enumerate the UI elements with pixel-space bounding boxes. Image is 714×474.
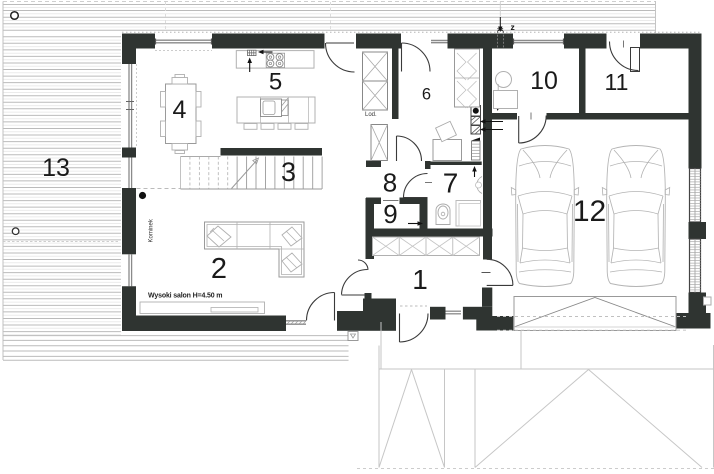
svg-text:Lod.: Lod.: [365, 112, 377, 118]
svg-text:7: 7: [443, 168, 459, 199]
svg-text:1: 1: [412, 264, 428, 295]
svg-text:Wysoki salon H=4.50 m: Wysoki salon H=4.50 m: [148, 293, 222, 300]
svg-text:Kominek: Kominek: [149, 218, 155, 242]
svg-text:2: 2: [211, 253, 227, 285]
svg-text:10: 10: [530, 67, 558, 95]
svg-text:11: 11: [605, 69, 629, 95]
svg-text:6: 6: [422, 86, 431, 104]
svg-text:4: 4: [173, 96, 187, 124]
svg-text:z: z: [511, 22, 515, 32]
svg-text:13: 13: [42, 154, 70, 182]
svg-text:3: 3: [281, 157, 296, 187]
svg-text:12: 12: [573, 195, 606, 228]
svg-text:9: 9: [383, 199, 397, 229]
svg-text:8: 8: [383, 168, 397, 198]
svg-text:5: 5: [269, 69, 282, 96]
